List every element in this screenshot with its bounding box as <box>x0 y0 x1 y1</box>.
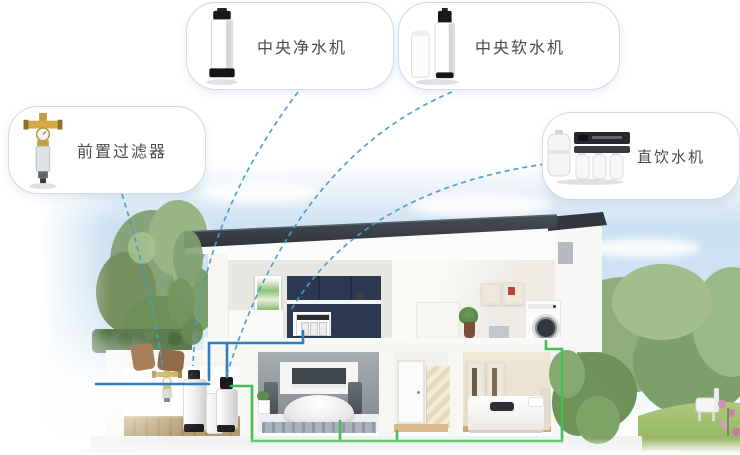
soft-water-pipe <box>231 341 562 441</box>
foreground-foliage <box>168 230 620 444</box>
bottom-fog <box>0 438 740 455</box>
infographic-home-water-system: 中央净水机 中央软水机 <box>0 0 740 455</box>
patio-chairs <box>130 342 185 372</box>
card-label: 中央净水机 <box>257 34 347 58</box>
drinking-machine-photo <box>543 114 637 198</box>
connector-prefilter <box>122 194 163 368</box>
pre-filter-photo <box>9 108 77 192</box>
card-central-purifier: 中央净水机 <box>186 2 394 90</box>
central-purifier-photo <box>187 4 257 88</box>
card-central-softener: 中央软水机 <box>398 2 620 90</box>
card-label: 直饮水机 <box>637 146 705 167</box>
card-label: 前置过滤器 <box>77 138 167 162</box>
central-softener-photo <box>399 4 475 88</box>
card-drinking-machine: 直饮水机 <box>542 112 740 200</box>
card-pre-filter: 前置过滤器 <box>8 106 206 194</box>
card-label: 中央软水机 <box>475 34 565 58</box>
